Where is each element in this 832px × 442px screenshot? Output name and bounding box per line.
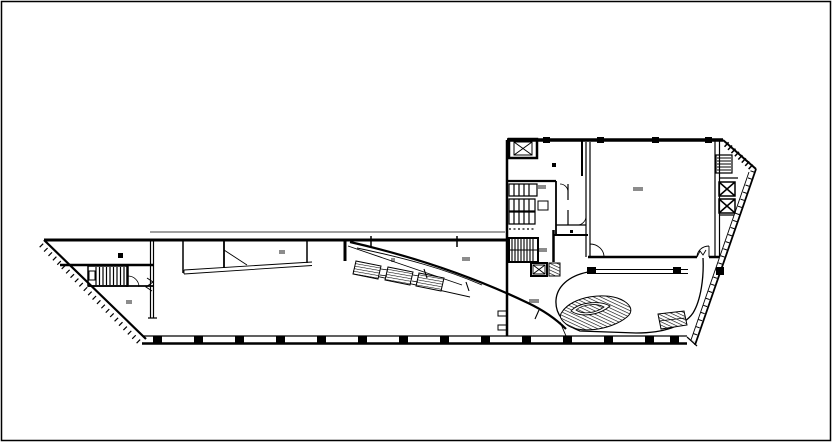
- small-square-mark: [552, 163, 556, 167]
- annotation-mark: [463, 257, 469, 261]
- wall-break-symbol: [146, 278, 153, 291]
- hall-door-right: [697, 246, 709, 257]
- column-mark: [358, 336, 367, 344]
- annotation-mark: [539, 185, 545, 189]
- floorplan-canvas: [0, 0, 832, 442]
- column-mark: [235, 336, 244, 344]
- hall-left-wall: [586, 142, 590, 257]
- column-mark: [440, 336, 449, 344]
- door-stub-a: [498, 311, 507, 316]
- door-stub-b: [498, 325, 507, 330]
- inner-room-walls: [556, 184, 586, 225]
- corner-hatch-band: [726, 144, 753, 169]
- hatched-duct: [549, 263, 560, 276]
- wedge-sliver: [184, 262, 312, 274]
- annotation-mark: [634, 187, 642, 191]
- column-mark: [673, 267, 681, 274]
- ramp-quad: [658, 311, 687, 329]
- wc-row-a: [509, 184, 537, 196]
- escalator-1: [353, 261, 381, 279]
- column-mark: [399, 336, 408, 344]
- hall-door-left: [590, 244, 604, 257]
- wc-fixture-box: [538, 201, 548, 210]
- column-mark: [153, 336, 162, 344]
- elevator-e1: [719, 182, 735, 196]
- elevator-s-car: [533, 265, 545, 274]
- column-mark: [194, 336, 203, 344]
- small-square-mark: [118, 253, 123, 258]
- column-mark: [276, 336, 285, 344]
- column-mark: [481, 336, 490, 344]
- atrium-sweep-wall: [350, 242, 566, 329]
- escalator-2: [385, 267, 413, 285]
- wing-left-diagonal-edge: [44, 240, 146, 339]
- stair-west-landing: [89, 271, 95, 280]
- column-mark: [645, 336, 654, 344]
- column-mark: [705, 137, 712, 143]
- plan-layer: [2, 2, 831, 441]
- stair-west-outline: [88, 266, 128, 286]
- elevator-nw-car: [514, 142, 532, 155]
- frame-border: [2, 2, 831, 441]
- wc-row-c: [509, 212, 535, 224]
- wc-row-b: [509, 199, 535, 211]
- inner-door-arc-a: [560, 184, 568, 192]
- annotation-mark: [280, 250, 284, 254]
- wing-diagonal-hatch-ticks: [41, 245, 140, 343]
- column-mark: [652, 137, 659, 143]
- column-mark: [604, 336, 613, 344]
- column-mark: [317, 336, 326, 344]
- door-leaf-line: [224, 250, 247, 265]
- annotation-mark: [540, 248, 546, 252]
- column-mark: [522, 336, 531, 344]
- column-mark: [543, 137, 550, 143]
- column-mark: [563, 336, 572, 344]
- column-mark: [587, 267, 596, 274]
- column-mark: [670, 336, 679, 344]
- escalator-3: [416, 273, 444, 291]
- stair-west-treads: [96, 267, 124, 285]
- sweep-tick-marks: [424, 269, 539, 319]
- floorplan-svg: [0, 0, 832, 442]
- annotation-mark: [530, 299, 538, 303]
- annotation-mark: [127, 300, 131, 304]
- elevator-e2: [719, 199, 735, 213]
- column-mark: [716, 267, 724, 275]
- small-square-mark: [570, 230, 573, 233]
- column-mark: [597, 137, 604, 143]
- inner-door-arc-b: [578, 217, 586, 225]
